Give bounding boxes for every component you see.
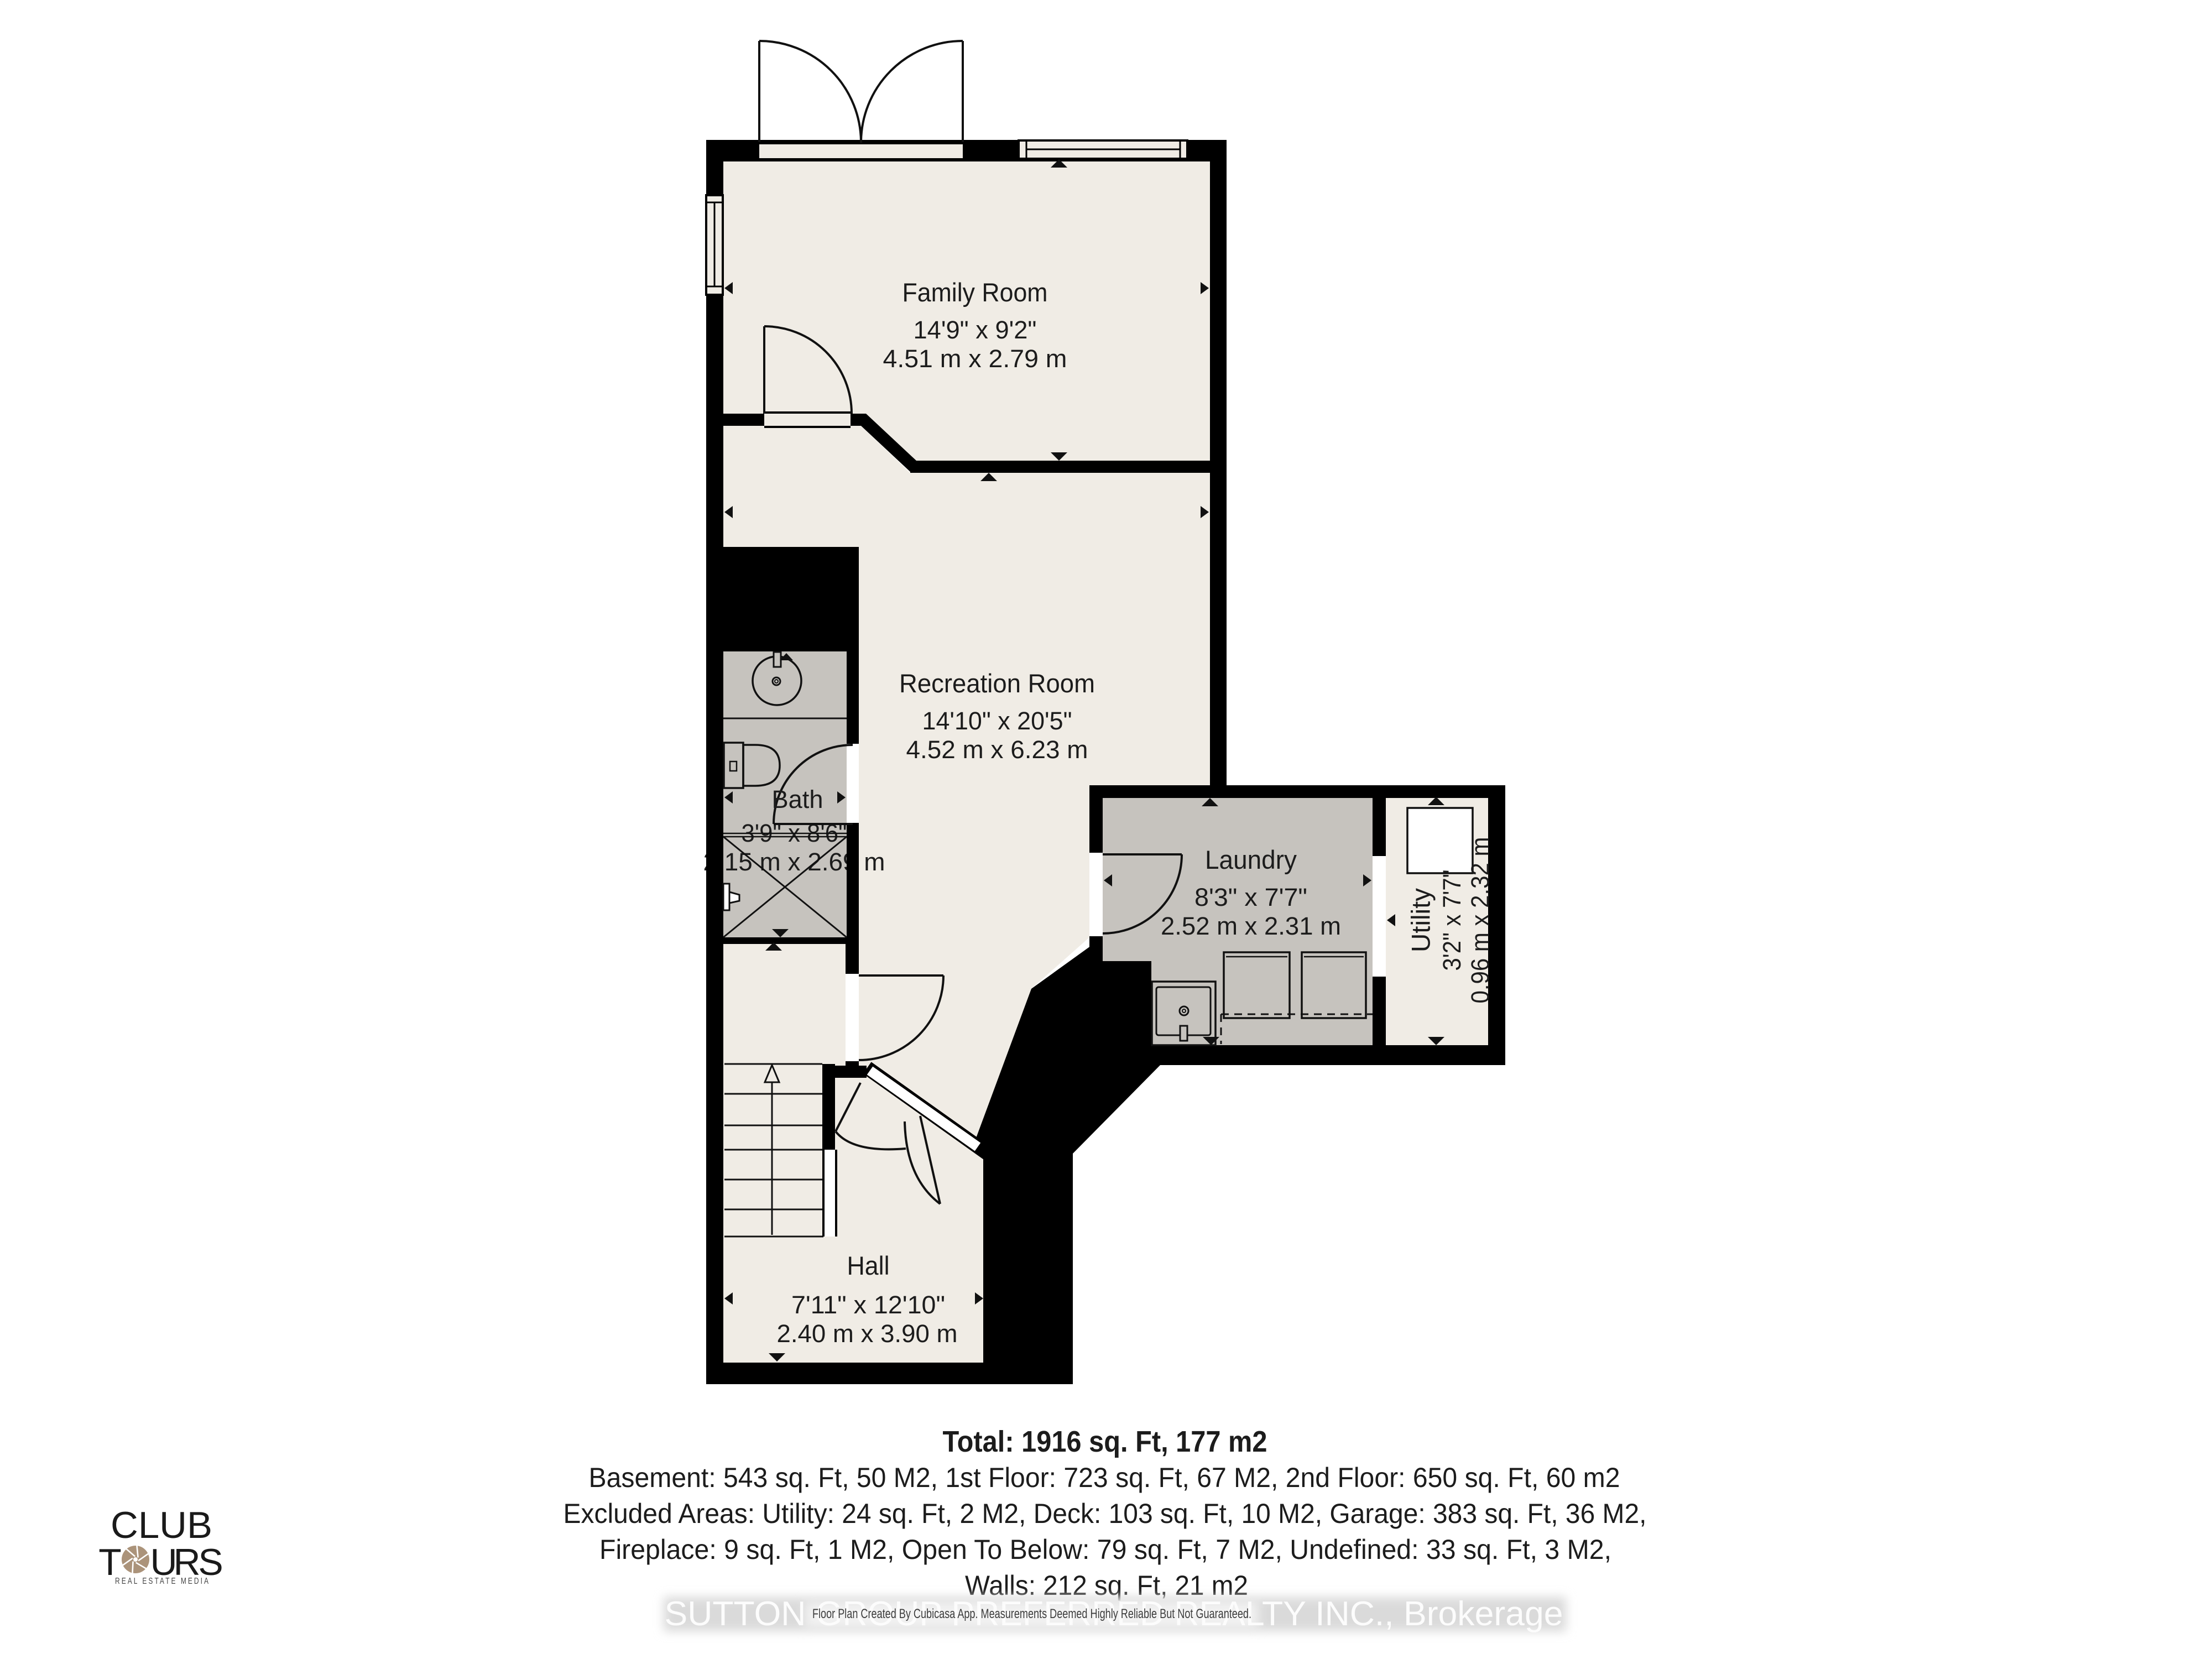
- svg-text:REAL ESTATE MEDIA: REAL ESTATE MEDIA: [115, 1577, 210, 1586]
- svg-text:Family Room: Family Room: [902, 278, 1048, 307]
- svg-text:Excluded Areas: Utility: 24 sq: Excluded Areas: Utility: 24 sq. Ft, 2 M2…: [564, 1498, 1647, 1529]
- svg-text:2.40 m x 3.90 m: 2.40 m x 3.90 m: [777, 1319, 958, 1348]
- svg-text:14'9" x 9'2": 14'9" x 9'2": [914, 316, 1037, 344]
- svg-text:4.52 m x 6.23 m: 4.52 m x 6.23 m: [906, 735, 1088, 764]
- svg-text:Bath: Bath: [772, 785, 823, 813]
- svg-text:Basement: 543 sq. Ft, 50 M2, 1: Basement: 543 sq. Ft, 50 M2, 1st Floor: …: [589, 1462, 1620, 1493]
- svg-text:Floor Plan Created By Cubicasa: Floor Plan Created By Cubicasa App. Meas…: [812, 1606, 1251, 1621]
- svg-text:Utility: Utility: [1406, 888, 1435, 952]
- svg-text:8'3" x 7'7": 8'3" x 7'7": [1194, 883, 1307, 911]
- svg-text:0.96 m x 2.32 m: 0.96 m x 2.32 m: [1466, 837, 1494, 1004]
- svg-text:Total: 1916 sq. Ft, 177 m2: Total: 1916 sq. Ft, 177 m2: [943, 1425, 1267, 1458]
- svg-text:Fireplace: 9 sq. Ft, 1 M2, Ope: Fireplace: 9 sq. Ft, 1 M2, Open To Below…: [599, 1534, 1611, 1565]
- svg-text:4.51 m x 2.79 m: 4.51 m x 2.79 m: [883, 345, 1067, 373]
- svg-text:Laundry: Laundry: [1205, 845, 1297, 874]
- svg-text:3'2" x 7'7": 3'2" x 7'7": [1438, 870, 1466, 971]
- svg-text:CLUB: CLUB: [111, 1504, 212, 1546]
- svg-text:7'11" x 12'10": 7'11" x 12'10": [791, 1291, 945, 1319]
- svg-text:14'10" x 20'5": 14'10" x 20'5": [922, 707, 1072, 735]
- svg-text:Recreation Room: Recreation Room: [899, 669, 1095, 698]
- svg-text:2.52 m x 2.31 m: 2.52 m x 2.31 m: [1161, 912, 1341, 940]
- svg-text:Hall: Hall: [847, 1251, 890, 1280]
